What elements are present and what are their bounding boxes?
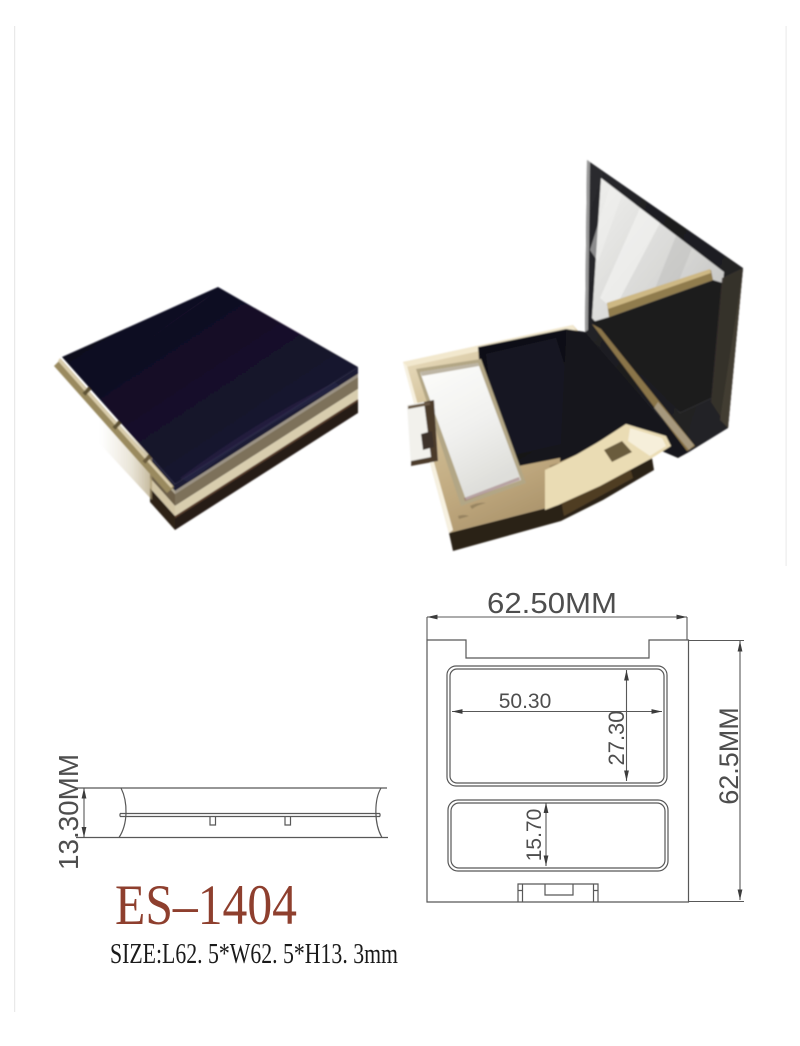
svg-text:13.30MM: 13.30MM [53,754,84,870]
svg-text:SIZE:L62. 5*W62. 5*H13. 3mm: SIZE:L62. 5*W62. 5*H13. 3mm [110,938,398,970]
svg-text:62.50MM: 62.50MM [487,588,617,620]
svg-text:62.5MM: 62.5MM [714,707,744,805]
svg-text:50.30: 50.30 [499,690,552,713]
svg-text:27.30: 27.30 [604,710,629,765]
svg-text:15.70: 15.70 [523,809,546,862]
svg-text:ES–1404: ES–1404 [115,874,297,937]
